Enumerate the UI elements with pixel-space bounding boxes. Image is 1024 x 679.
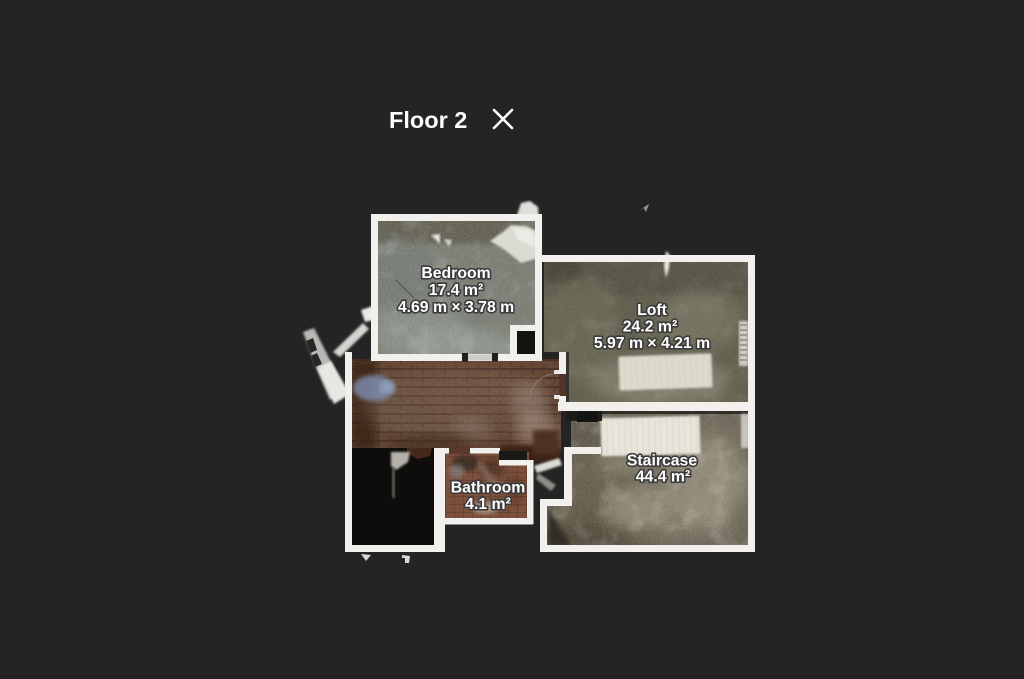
svg-text:Floor 2: Floor 2 — [389, 107, 467, 133]
svg-text:Loft: Loft — [637, 302, 668, 319]
svg-text:Bedroom: Bedroom — [421, 265, 490, 282]
svg-text:44.4 m²: 44.4 m² — [636, 469, 690, 486]
svg-text:5.97 m × 4.21 m: 5.97 m × 4.21 m — [594, 335, 710, 352]
svg-text:4.69 m × 3.78 m: 4.69 m × 3.78 m — [398, 299, 514, 316]
svg-text:4.1 m²: 4.1 m² — [465, 496, 511, 513]
svg-text:Staircase: Staircase — [627, 453, 697, 470]
svg-text:24.2 m²: 24.2 m² — [623, 319, 677, 336]
svg-text:Bathroom: Bathroom — [451, 480, 526, 497]
svg-text:17.4 m²: 17.4 m² — [429, 282, 483, 299]
